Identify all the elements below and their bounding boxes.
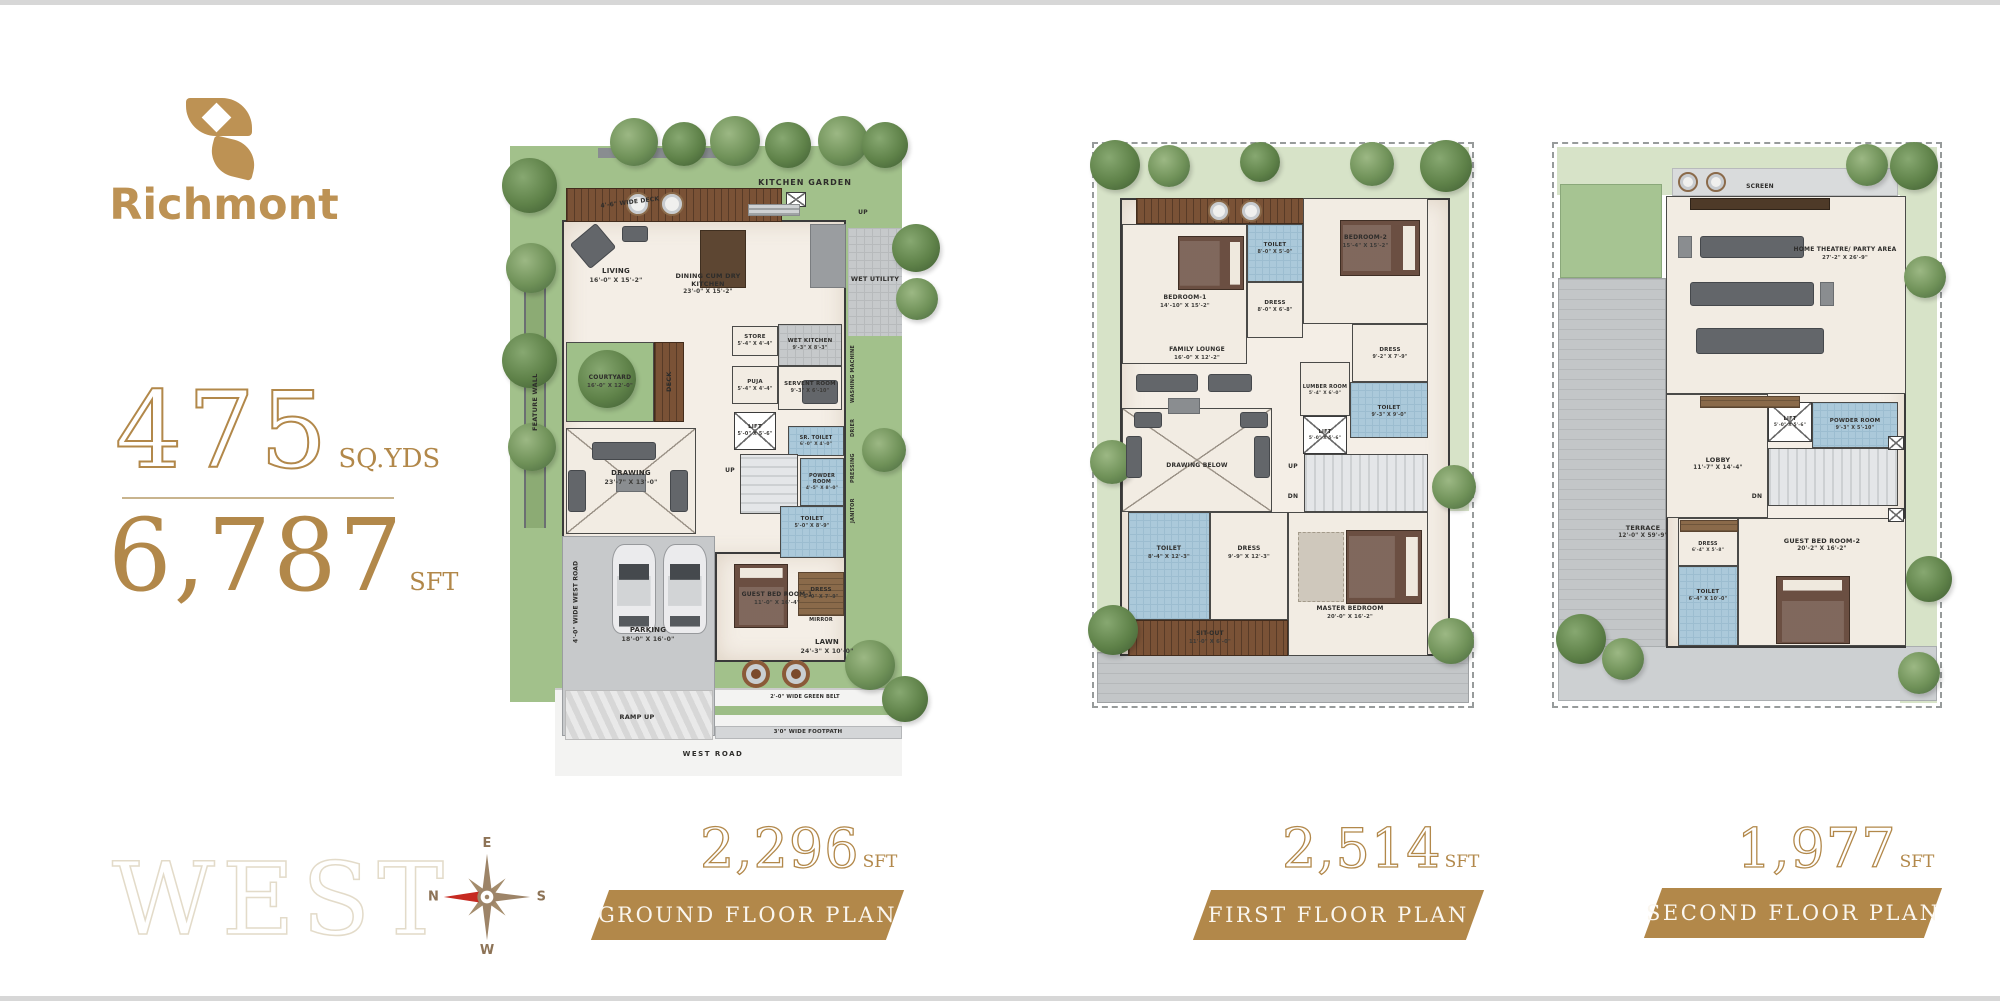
label-west-road: WEST ROAD [658, 748, 768, 760]
compass-letter-bottom: W [480, 943, 494, 958]
plot-area-unit: SQ.YDS [338, 444, 440, 474]
bed-shape [1346, 530, 1422, 604]
label-mirror: MIRROR [800, 616, 842, 625]
planter-shape [742, 660, 770, 688]
label-up: UP [721, 466, 739, 475]
terrace-shape [1097, 652, 1469, 703]
label-screen: SCREEN [1690, 182, 1830, 192]
label-drawing: DRAWING23'-7" X 13'-0" [566, 458, 696, 498]
tree-shape [1906, 556, 1952, 602]
compass-letter-left: N [428, 890, 439, 905]
page-top-edge [0, 0, 2000, 5]
tree-shape [1428, 618, 1474, 664]
tree-shape [1602, 638, 1644, 680]
built-area: 6,787 SFT [108, 498, 458, 613]
label-janitor: JANITOR [846, 492, 860, 530]
built-area-unit: SFT [409, 568, 458, 596]
label-2-0-wide-green-belt: 2'-0" WIDE GREEN BELT [735, 693, 875, 702]
xbox-shape [1888, 508, 1904, 522]
label-powder-room: POWDER ROOM4'-5" X 8'-0" [800, 460, 844, 504]
label-4-0-wide-west-road: 4'-0" WIDE WEST ROAD [568, 526, 584, 678]
brand-name: Richmont [104, 180, 344, 230]
ground-floor-sft-value: 2,296 [700, 817, 860, 880]
label-family-lounge: FAMILY LOUNGE16'-0" X 12'-2" [1130, 340, 1264, 368]
label-dress: DRESS5'-0" X 7'-9" [798, 576, 844, 612]
ground-floor-sft: 2,296SFT [700, 822, 890, 876]
tree-shape [892, 224, 940, 272]
label-dn: DN [1284, 492, 1302, 501]
first-floor-sft: 2,514SFT [1282, 822, 1472, 876]
label-toilet: TOILET5'-0" X 8'-9" [780, 508, 844, 538]
label-sr-toilet: SR. TOILET6'-0" X 4'-0" [788, 426, 844, 456]
tree-shape [818, 116, 868, 166]
facing-watermark: WEST [112, 850, 451, 950]
tree-shape [502, 158, 557, 213]
label-puja: PUJA5'-4" X 4'-4" [732, 368, 778, 404]
label-up: UP [1284, 462, 1302, 471]
sofa-shape [1700, 236, 1804, 258]
label-kitchen-garden: KITCHEN GARDEN [720, 176, 890, 190]
label-ramp-up: RAMP UP [605, 712, 669, 723]
tree-shape [1088, 605, 1138, 655]
label-powder-room: POWDER ROOM9'-3" X 5'-10" [1812, 408, 1898, 442]
sofa-shape [1240, 412, 1268, 428]
tree-shape [1432, 465, 1476, 509]
label-store: STORE5'-4" X 4'-4" [732, 326, 778, 356]
ctable-shape [1820, 282, 1834, 306]
label-dress: DRESS9'-2" X 7'-9" [1352, 340, 1428, 368]
tree-shape [1904, 256, 1946, 298]
second-floor-sft: 1,977SFT [1737, 822, 1927, 876]
label-living: LIVING16'-0" X 15'-2" [566, 256, 666, 296]
ground-floor-banner: GROUND FLOOR PLAN [591, 890, 904, 940]
sofa-shape [1254, 436, 1270, 478]
ctable-shape [1678, 236, 1692, 258]
tree-shape [506, 243, 556, 293]
second-floor-sft-unit: SFT [1900, 852, 1935, 872]
sofa-shape [622, 226, 648, 242]
tree-shape [1846, 144, 1888, 186]
first-floor-sft-value: 2,514 [1282, 817, 1442, 880]
plot-area-value: 475 [115, 378, 332, 484]
tree-shape [1240, 142, 1280, 182]
tree-shape [1556, 614, 1606, 664]
rug-shape [1298, 532, 1344, 602]
brochure-page: Richmont 475 SQ.YDS 6,787 SFT WEST E N S… [0, 0, 2000, 1001]
label-guest-bed-room-2: GUEST BED ROOM-220'-2" X 16'-2" [1742, 530, 1902, 560]
sofa-shape [1696, 328, 1824, 354]
second-floor-banner-label: SECOND FLOOR PLAN [1646, 901, 1940, 925]
label-drier: DRIER [846, 412, 860, 444]
terrace-shape [1558, 278, 1666, 650]
tree-shape [1090, 140, 1140, 190]
label-master-bedroom: MASTER BEDROOM20'-0" X 16'-2" [1290, 598, 1410, 628]
richmont-logo-icon [170, 96, 274, 184]
belt-shape [715, 706, 902, 715]
second-floor-plan-drawing: SCREENHOME THEATRE/ PARTY AREA27'-2" X 2… [1550, 140, 1950, 752]
tree-shape [1420, 140, 1472, 192]
compass-star-icon [440, 850, 534, 944]
car-shape [612, 544, 656, 634]
first-floor-sft-unit: SFT [1445, 852, 1480, 872]
bed-v-shape [1776, 576, 1850, 644]
label-toilet: TOILET8'-4" X 12'-3" [1128, 538, 1210, 568]
tree-shape [896, 278, 938, 320]
page-bottom-edge [0, 996, 2000, 1001]
label-3-0-wide-footpath: 3'0" WIDE FOOTPATH [738, 727, 878, 737]
label-up: UP [854, 208, 872, 217]
plot-area: 475 SQ.YDS [115, 378, 440, 484]
stairs-h-shape [1304, 454, 1428, 512]
chair-shape [1240, 200, 1262, 222]
second-floor-sft-value: 1,977 [1737, 817, 1897, 880]
sofa-shape [1126, 436, 1142, 478]
label-wet-kitchen: WET KITCHEN9'-3" X 8'-3" [778, 326, 842, 364]
car-shape [663, 544, 707, 634]
tree-shape [662, 122, 706, 166]
label-toilet: TOILET8'-0" X 5'-0" [1247, 234, 1303, 264]
label-dress: DRESS8'-0" X 6'-8" [1247, 292, 1303, 322]
steps-shape [748, 204, 800, 216]
first-floor-banner: FIRST FLOOR PLAN [1193, 890, 1484, 940]
tree-shape [862, 428, 906, 472]
label-dining-cum-dry-kitchen: DINING CUM DRY KITCHEN23'-0" X 15'-2" [658, 264, 758, 304]
sofa-shape [1690, 282, 1814, 306]
label-dress: DRESS6'-4" X 5'-8" [1678, 532, 1738, 562]
ground-floor-plan-drawing: KITCHEN GARDENUP4'-6" WIDE DECKWET UTILI… [510, 128, 950, 776]
label-courtyard: COURTYARD16'-0" X 12'-0" [566, 364, 654, 400]
label-toilet: TOILET6'-4" X 10'-0" [1678, 580, 1738, 612]
logo-leaf-bottom [206, 135, 259, 181]
ctable-shape [1168, 398, 1200, 414]
stairs-v-shape [740, 454, 798, 514]
first-floor-plan-drawing: BEDROOM-114'-10" X 15'-2"TOILET8'-0" X 5… [1090, 140, 1490, 752]
label-deck: DECK [654, 342, 684, 422]
label-lumber-room: LUMBER ROOM5'-4" X 6'-0" [1300, 374, 1350, 406]
label-drawing-below: DRAWING BELOW [1160, 454, 1234, 478]
tree-shape [1898, 652, 1940, 694]
stairs-h-shape [1768, 448, 1898, 506]
label-lobby: LOBBY11'-7" X 14'-4" [1668, 450, 1768, 478]
compass-rose-icon: E N S W [428, 838, 546, 956]
compass-letter-right: S [537, 890, 546, 905]
tree-shape [765, 122, 811, 168]
ground-floor-banner-label: GROUND FLOOR PLAN [598, 903, 897, 927]
built-area-value: 6,787 [108, 498, 404, 613]
label-lift: LIFT5'-0" X 5'-6" [1768, 406, 1812, 438]
tree-shape [1350, 142, 1394, 186]
label-wet-utility: WET UTILITY [848, 273, 902, 285]
bed-shape [1178, 236, 1244, 290]
tree-shape [1148, 145, 1190, 187]
label-feature-wall: FEATURE WALL [524, 336, 546, 468]
sofa-shape [1136, 374, 1198, 392]
label-lawn: LAWN24'-3" X 10'-0" [766, 634, 888, 660]
tree-shape [862, 122, 908, 168]
label-toilet: TOILET9'-3" X 9'-0" [1350, 398, 1428, 426]
first-floor-banner-label: FIRST FLOOR PLAN [1208, 903, 1469, 927]
sofa-shape [1134, 412, 1162, 428]
counter-shape [810, 224, 846, 288]
sofa-shape [1208, 374, 1252, 392]
planter-shape [782, 660, 810, 688]
label-parking: PARKING18'-0" X 16'-0" [588, 622, 708, 648]
tree-shape [882, 676, 928, 722]
label-bedroom-2: BEDROOM-215'-4" X 15'-2" [1303, 228, 1428, 256]
label-lift: LIFT5'-0" X 5'-6" [1303, 420, 1347, 450]
label-pressing: PRESSING [846, 446, 860, 490]
label-lift: LIFT5'-0" X 5'-6" [734, 414, 776, 448]
ground-floor-sft-unit: SFT [863, 852, 898, 872]
label-servent-room: SERVENT ROOM9'-3" X 6'-10" [778, 368, 842, 408]
screenbar-shape [1690, 198, 1830, 210]
tree-shape [610, 118, 658, 166]
label-bedroom-1: BEDROOM-114'-10" X 15'-2" [1124, 288, 1246, 316]
tree-shape [1890, 142, 1938, 190]
label-dress: DRESS9'-9" X 12'-3" [1210, 538, 1288, 568]
label-washing-machine: WASHING MACHINE [846, 338, 860, 410]
second-floor-banner: SECOND FLOOR PLAN [1644, 888, 1942, 938]
compass-letter-top: E [483, 836, 492, 851]
label-dn: DN [1748, 492, 1766, 501]
label-sit-out: SIT-OUT11'-0" X 6'-0" [1150, 627, 1270, 649]
chair-shape [1208, 200, 1230, 222]
label-home-theatre-party-area: HOME THEATRE/ PARTY AREA27'-2" X 26'-9" [1790, 232, 1900, 276]
tree-shape [710, 116, 760, 166]
green2-shape [1560, 184, 1662, 278]
